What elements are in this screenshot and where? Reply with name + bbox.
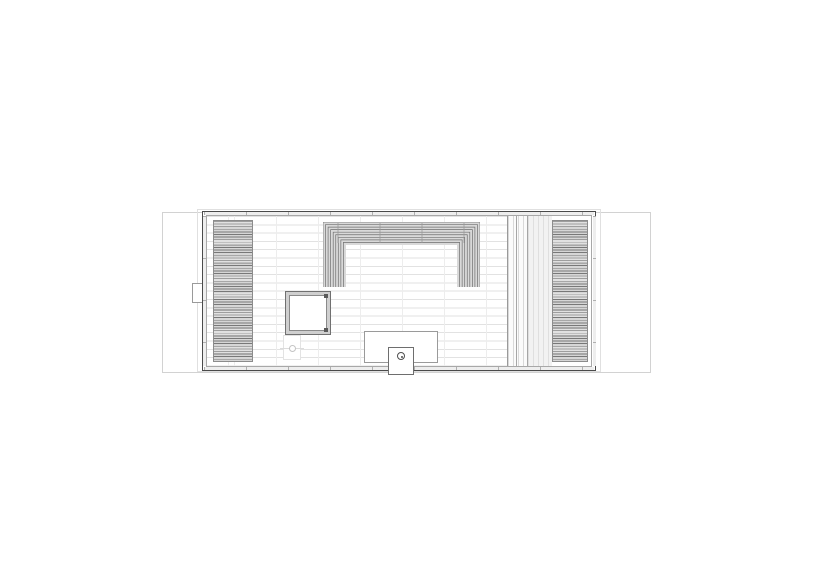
bench-svg (323, 222, 480, 288)
right-band-shading (527, 216, 552, 366)
right-band-joint-line (527, 216, 528, 366)
flue-pipe-center-dot (401, 356, 403, 358)
u-shaped-bench (323, 222, 480, 288)
hinged-hatch-square (285, 291, 331, 335)
wall-fastener-ticks-top (204, 212, 594, 215)
plan-canvas (0, 0, 818, 578)
floor-drain-circle (289, 345, 296, 352)
right-band-joint-line (516, 216, 517, 366)
chimney-flue-box (388, 347, 414, 375)
hatch-square-opening (289, 295, 327, 331)
wall-fastener-ticks-left (203, 216, 206, 366)
hinge-mark (324, 328, 328, 332)
right-louver-deck (552, 220, 588, 362)
wall-fastener-ticks-right (593, 216, 596, 366)
left-louver-deck (213, 220, 253, 362)
hinge-mark (324, 294, 328, 298)
